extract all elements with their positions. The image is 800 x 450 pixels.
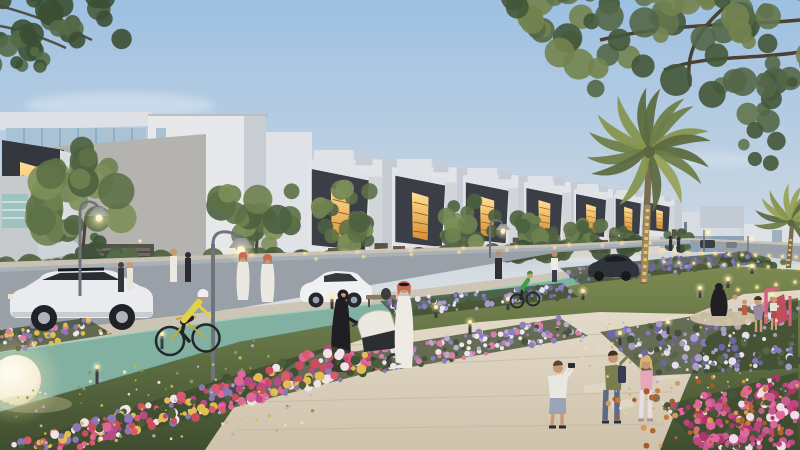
light-dot — [754, 254, 757, 257]
branch-top-left-leaf — [111, 29, 131, 49]
rendered-scene — [0, 0, 800, 450]
bed-foreground-left-flower — [265, 379, 272, 386]
fallen-leaves-flower — [644, 443, 650, 449]
bed-near-lavender-flower — [555, 296, 560, 301]
bed-right-lavender-flower — [656, 369, 662, 375]
bed-far-lavender-flower — [581, 266, 584, 269]
bed-foreground-left-flower — [382, 360, 387, 365]
bed-right-lavender-flower — [777, 357, 780, 360]
grass-speckle-left-flower — [181, 435, 184, 438]
bed-bottom-right-pink-flower — [770, 416, 774, 420]
grass-speckle-right-flower — [700, 396, 703, 399]
grass-speckle-right-flower — [749, 364, 752, 367]
bed-bottom-right-pink-flower — [729, 423, 735, 429]
bed-right-lavender-flower — [728, 334, 731, 337]
canopy-top-right-2-leaf — [738, 139, 750, 151]
light-dot — [663, 261, 666, 264]
bed-right-lavender-flower — [705, 339, 712, 346]
grass-speckle-left-flower — [271, 393, 274, 396]
grass-speckle-left-flower — [135, 379, 137, 381]
grass-speckle-left-flower — [89, 380, 92, 383]
bollard-bulb — [726, 277, 730, 281]
bed-foreground-left-flower — [164, 397, 170, 403]
fallen-leaves-flower — [761, 402, 764, 405]
bed-right-lavender-flower — [717, 365, 722, 370]
grass-speckle-left-flower — [241, 368, 244, 371]
fallen-leaves-flower — [778, 430, 784, 436]
grass-speckle-left-flower — [187, 402, 190, 405]
bed-right-lavender-flower — [695, 354, 703, 362]
fallen-leaves-flower — [748, 404, 753, 409]
grass-speckle-right-flower — [661, 353, 664, 356]
bed-mid-white-pink-flower — [466, 346, 470, 350]
tree-2-leaf — [224, 202, 246, 224]
grass-speckle-right-flower — [616, 340, 618, 342]
bed-far-lavender-flower — [571, 274, 574, 277]
bed-foreground-left-flower — [130, 428, 137, 435]
bed-near-lavender-flower — [496, 301, 500, 305]
bed-mid-white-pink-flower — [437, 354, 441, 358]
grass-speckle-right-flower — [746, 396, 748, 398]
canopy-top-right-leaf — [758, 34, 778, 54]
light-dot — [767, 265, 770, 268]
bed-mid-white-pink-flower — [472, 351, 476, 355]
fallen-leaves-flower — [745, 420, 751, 426]
light-dot — [707, 263, 710, 266]
fallen-leaves-flower — [675, 381, 680, 386]
bed-bottom-right-pink-flower — [768, 382, 773, 387]
grass-speckle-left-flower — [39, 391, 42, 394]
bed-far-lavender-flower — [667, 267, 672, 272]
grass-speckle-left-flower — [286, 405, 288, 407]
fallen-leaves-flower — [632, 398, 636, 402]
bed-left-median-flower — [73, 332, 78, 337]
bed-bottom-right-pink-flower — [790, 411, 799, 420]
bed-right-lavender-flower — [703, 355, 709, 361]
bed-left-median-flower — [44, 332, 47, 335]
bed-bottom-right-pink-flower — [705, 400, 712, 407]
bed-foreground-left-flower — [139, 411, 147, 419]
bed-foreground-left-flower — [351, 355, 361, 365]
bed-left-median-flower — [78, 324, 81, 327]
canopy-top-right-leaf — [705, 43, 729, 67]
grass-speckle-right-flower — [656, 381, 659, 384]
fallen-leaves-flower — [710, 384, 714, 388]
canopy-top-right-leaf — [595, 2, 624, 31]
bed-far-lavender-flower — [680, 256, 683, 259]
bed-mid-white-pink-flower — [381, 355, 385, 359]
bed-right-lavender-flower — [702, 365, 706, 369]
tree-5-leaf — [515, 219, 530, 234]
grass-speckle-left-flower — [44, 432, 47, 435]
bed-right-lavender-flower — [627, 328, 632, 333]
bed-bottom-right-pink-flower — [793, 407, 797, 411]
fallen-leaves-flower — [659, 444, 663, 448]
bed-foreground-left-flower — [340, 362, 349, 371]
grass-speckle-right-flower — [652, 408, 654, 410]
bed-mid-white-pink-flower — [556, 321, 561, 326]
grass-speckle-left-flower — [80, 402, 82, 404]
bed-mid-white-pink-flower — [426, 341, 430, 345]
bed-left-median-flower — [107, 331, 110, 334]
bed-far-lavender-flower — [693, 268, 697, 272]
fallen-leaves-flower — [734, 411, 739, 416]
bed-right-lavender-flower — [791, 335, 794, 338]
bed-near-lavender-flower — [386, 302, 389, 305]
fallen-leaves-flower — [664, 415, 669, 420]
light-dot — [462, 247, 465, 250]
bed-foreground-left-flower — [145, 402, 151, 408]
grass-speckle-left-flower — [250, 367, 252, 369]
grass-speckle-right-flower — [744, 340, 746, 342]
tree-3-leaf — [312, 204, 327, 219]
bed-bottom-right-pink-flower — [785, 443, 790, 448]
bed-far-lavender-flower — [578, 278, 583, 283]
bollard-bulb — [618, 331, 622, 335]
grass-speckle-left-flower — [232, 384, 235, 387]
bed-right-lavender-flower — [752, 358, 758, 364]
tree-1-leaf — [70, 169, 91, 190]
light-dot — [755, 286, 758, 289]
bed-right-lavender-flower — [731, 344, 738, 351]
bed-near-lavender-flower — [474, 293, 478, 297]
grass-speckle-right-flower — [713, 375, 715, 377]
fallen-leaves-flower — [736, 418, 741, 423]
bed-right-lavender-flower — [619, 347, 623, 351]
bed-bottom-right-pink-flower — [770, 421, 778, 429]
grass-speckle-left-flower — [157, 381, 160, 384]
bed-mid-white-pink-flower — [464, 351, 470, 357]
bed-right-lavender-flower — [679, 341, 685, 347]
grass-speckle-left-flower — [115, 439, 118, 442]
bed-right-lavender-flower — [704, 369, 709, 374]
grass-speckle-left-flower — [134, 365, 137, 368]
tree-4-leaf — [467, 194, 483, 210]
bed-right-lavender-flower — [692, 363, 699, 370]
fallen-leaves-flower — [725, 420, 729, 424]
grass-speckle-left-flower — [87, 443, 90, 446]
bed-foreground-left-flower — [82, 430, 89, 437]
bed-right-lavender-flower — [714, 336, 721, 343]
fallen-leaves-flower — [688, 430, 693, 435]
grass-speckle-left-flower — [128, 393, 131, 396]
canopy-top-right-leaf — [729, 67, 758, 96]
bed-right-lavender-flower — [648, 347, 654, 353]
bed-right-lavender-flower — [641, 349, 648, 356]
grass-speckle-left-flower — [35, 410, 38, 413]
bed-right-lavender-flower — [690, 334, 698, 342]
bed-mid-white-pink-flower — [498, 331, 504, 337]
grass-speckle-left-flower — [123, 370, 126, 373]
tree-2-leaf — [218, 184, 237, 203]
light-dot — [737, 264, 740, 267]
branch-top-left-2-leaf — [21, 29, 38, 46]
grass-speckle-right-flower — [617, 362, 620, 365]
bed-bottom-right-pink-flower — [761, 432, 766, 437]
fallen-leaves-flower — [663, 407, 666, 410]
bed-right-lavender-flower — [627, 335, 635, 343]
bed-near-lavender-flower — [464, 292, 468, 296]
palm-crown-base — [787, 219, 794, 226]
bed-bottom-right-pink-flower — [699, 443, 704, 448]
bed-left-median-flower — [34, 330, 40, 336]
grass-speckle-left-flower — [45, 441, 48, 444]
bed-mid-white-pink-flower — [491, 331, 497, 337]
bed-bottom-right-pink-flower — [788, 382, 795, 389]
bollard-bulb — [750, 264, 754, 268]
grass-speckle-left-flower — [190, 380, 194, 384]
grass-speckle-left-flower — [98, 439, 101, 442]
grass-speckle-right-flower — [625, 413, 627, 415]
bollard-bulb — [666, 320, 670, 324]
bed-mid-white-pink-flower — [442, 358, 447, 363]
light-dot — [553, 246, 555, 248]
bed-near-lavender-flower — [544, 285, 548, 289]
light-dot — [356, 250, 359, 253]
bed-far-lavender-flower — [685, 260, 688, 263]
tree-3-leaf — [336, 180, 354, 198]
bed-foreground-left-flower — [281, 371, 289, 379]
bed-near-lavender-flower — [448, 304, 451, 307]
bed-mid-white-pink-flower — [518, 336, 522, 340]
fallen-leaves-flower — [674, 436, 677, 439]
grass-speckle-left-flower — [79, 393, 81, 395]
bed-right-lavender-flower — [785, 364, 792, 371]
grass-speckle-left-flower — [7, 402, 9, 404]
grass-speckle-right-flower — [775, 319, 778, 322]
bed-right-lavender-flower — [718, 344, 725, 351]
bed-foreground-left-flower — [338, 378, 343, 383]
light-dot — [677, 261, 680, 264]
grass-speckle-left-flower — [136, 389, 138, 391]
bed-far-lavender-flower — [748, 255, 750, 257]
tree-1-leaf — [98, 173, 135, 210]
fallen-leaves-flower — [655, 388, 660, 393]
bed-near-lavender-flower — [555, 288, 559, 292]
bed-foreground-left-flower — [171, 418, 177, 424]
bed-foreground-left-flower — [390, 363, 397, 370]
bed-foreground-left-flower — [102, 422, 111, 431]
bed-right-lavender-flower — [778, 360, 784, 366]
bed-near-lavender-flower — [415, 296, 421, 302]
grass-speckle-left-flower — [197, 365, 199, 367]
bed-left-median-flower — [64, 330, 69, 335]
bed-mid-white-pink-flower — [483, 343, 487, 347]
bed-right-lavender-flower — [773, 333, 777, 337]
bed-foreground-left-flower — [209, 406, 216, 413]
fallen-leaves-flower — [693, 429, 699, 435]
bed-near-lavender-flower — [549, 294, 554, 299]
bed-mid-white-pink-flower — [505, 342, 510, 347]
grass-speckle-left-flower — [311, 409, 314, 412]
bed-right-lavender-flower — [763, 347, 770, 354]
bollard-bulb — [770, 293, 774, 297]
bed-bottom-right-pink-flower — [750, 441, 755, 446]
grass-speckle-right-flower — [777, 305, 780, 308]
bed-mid-white-pink-flower — [508, 329, 515, 336]
bed-left-median-flower — [63, 323, 67, 327]
bed-mid-white-pink-flower — [521, 338, 528, 345]
bed-mid-white-pink-flower — [431, 356, 436, 361]
bed-left-median-flower — [6, 328, 12, 334]
bollard-bulb — [95, 365, 99, 369]
branch-top-left-2-leaf — [30, 47, 40, 57]
bed-foreground-left-flower — [182, 411, 186, 415]
grass-speckle-right-flower — [728, 344, 731, 347]
light-dot — [797, 267, 800, 270]
grass-speckle-left-flower — [40, 440, 43, 443]
bed-left-median-flower — [21, 328, 24, 331]
grass-speckle-right-flower — [771, 313, 772, 314]
bed-right-lavender-flower — [668, 336, 672, 340]
fallen-leaves-flower — [709, 441, 712, 444]
bed-right-lavender-flower — [763, 326, 767, 330]
bed-mid-white-pink-flower — [575, 330, 580, 335]
bed-right-lavender-flower — [755, 353, 760, 358]
bed-mid-white-pink-flower — [459, 342, 464, 347]
light-dot — [774, 283, 777, 286]
grass-speckle-left-flower — [40, 424, 43, 427]
grass-speckle-right-flower — [704, 319, 706, 321]
bed-right-lavender-flower — [741, 341, 747, 347]
bed-right-lavender-flower — [786, 348, 789, 351]
bed-bottom-right-pink-flower — [793, 419, 798, 424]
grass-speckle-right-flower — [780, 388, 782, 390]
fallen-leaves-flower — [704, 411, 707, 414]
bed-mid-white-pink-flower — [500, 346, 504, 350]
bed-foreground-left-flower — [255, 395, 262, 402]
fallen-leaves-flower — [696, 413, 701, 418]
bed-mid-white-pink-flower — [442, 352, 445, 355]
light-dot — [727, 253, 730, 256]
light-dot — [741, 253, 744, 256]
bed-foreground-left-flower — [283, 380, 291, 388]
bed-right-lavender-flower — [638, 354, 642, 358]
grass-speckle-left-flower — [51, 430, 54, 433]
bed-right-lavender-flower — [726, 367, 734, 375]
bed-foreground-left-flower — [334, 351, 343, 360]
grass-speckle-left-flower — [81, 422, 84, 425]
grass-speckle-left-flower — [170, 385, 173, 388]
bed-near-lavender-flower — [456, 308, 458, 310]
tree-4-leaf — [445, 227, 461, 243]
bed-right-lavender-flower — [674, 330, 681, 337]
bed-right-lavender-flower — [721, 326, 727, 332]
bed-right-lavender-flower — [630, 344, 634, 348]
bed-far-lavender-flower — [579, 272, 581, 274]
grass-speckle-left-flower — [267, 355, 270, 358]
canopy-top-right-leaf — [755, 4, 781, 30]
bed-foreground-left-flower — [362, 352, 368, 358]
grass-speckle-right-flower — [762, 394, 764, 396]
fallen-leaves-flower — [641, 425, 647, 431]
bed-right-lavender-flower — [796, 307, 800, 311]
grass-speckle-right-flower — [571, 343, 574, 346]
grass-speckle-right-flower — [695, 376, 698, 379]
light-dot — [793, 280, 796, 283]
bed-foreground-left-flower — [357, 364, 367, 374]
bollard-bulb — [468, 320, 472, 324]
bed-foreground-left-flower — [227, 380, 232, 385]
canopy-top-right-leaf — [660, 64, 692, 96]
bed-far-lavender-flower — [705, 257, 707, 259]
grass-speckle-right-flower — [635, 345, 638, 348]
canopy-top-right-leaf — [588, 58, 609, 79]
branch-top-left-2-leaf — [10, 56, 23, 69]
grass-speckle-right-flower — [627, 399, 629, 401]
bed-mid-white-pink-flower — [467, 340, 472, 345]
bed-bottom-right-pink-flower — [756, 383, 761, 388]
bed-mid-white-pink-flower — [539, 339, 543, 343]
bed-bottom-right-pink-flower — [705, 407, 709, 411]
grass-speckle-left-flower — [288, 405, 290, 407]
light-dot — [782, 266, 785, 269]
bed-right-lavender-flower — [758, 360, 763, 365]
bed-right-lavender-flower — [753, 364, 758, 369]
grass-speckle-right-flower — [732, 332, 735, 335]
bed-right-lavender-flower — [654, 347, 660, 353]
grass-speckle-right-flower — [582, 356, 584, 358]
bollard-bulb — [434, 305, 438, 309]
bed-foreground-left-flower — [19, 444, 24, 449]
fallen-leaves-flower — [762, 397, 766, 401]
bed-mid-white-pink-flower — [483, 336, 488, 341]
bed-foreground-left-flower — [148, 422, 156, 430]
bed-right-lavender-flower — [734, 363, 740, 369]
bed-right-lavender-flower — [717, 355, 725, 363]
grass-speckle-right-flower — [668, 353, 669, 354]
bed-bottom-right-pink-flower — [722, 392, 727, 397]
fallen-leaves-flower — [650, 428, 656, 434]
bed-right-lavender-flower — [711, 362, 715, 366]
bed-bottom-right-pink-flower — [789, 430, 794, 435]
grass-speckle-left-flower — [119, 435, 122, 438]
grass-speckle-right-flower — [607, 327, 608, 328]
scene-canvas — [0, 0, 800, 450]
bed-mid-white-pink-flower — [510, 335, 514, 339]
light-dot — [515, 245, 518, 248]
bed-far-lavender-flower — [734, 259, 736, 261]
grass-speckle-left-flower — [87, 428, 89, 430]
canopy-top-right-2-leaf — [747, 122, 764, 139]
bed-mid-white-pink-flower — [499, 342, 504, 347]
grass-speckle-left-flower — [215, 379, 217, 381]
bed-right-lavender-flower — [656, 321, 663, 328]
grass-speckle-left-flower — [268, 414, 271, 417]
grass-speckle-left-flower — [284, 423, 287, 426]
grass-speckle-right-flower — [728, 386, 729, 387]
grass-speckle-right-flower — [729, 342, 731, 344]
grass-speckle-left-flower — [211, 394, 213, 396]
tree-4-leaf — [458, 215, 477, 234]
grass-speckle-left-flower — [41, 388, 44, 391]
bed-mid-white-pink-flower — [556, 315, 562, 321]
bed-left-median-flower — [99, 329, 102, 332]
light-dot — [781, 255, 784, 258]
bed-foreground-left-flower — [298, 381, 306, 389]
bed-far-lavender-flower — [648, 274, 650, 276]
bed-left-median-flower — [55, 338, 61, 344]
bed-bottom-right-pink-flower — [684, 420, 690, 426]
bed-foreground-left-flower — [168, 410, 176, 418]
bed-foreground-left-flower — [283, 388, 288, 393]
grass-speckle-right-flower — [615, 390, 617, 392]
grass-speckle-left-flower — [300, 421, 303, 424]
bed-foreground-left-flower — [313, 380, 321, 388]
grass-speckle-right-flower — [584, 347, 587, 350]
bed-foreground-left-flower — [228, 404, 234, 410]
grass-speckle-left-flower — [88, 371, 91, 374]
